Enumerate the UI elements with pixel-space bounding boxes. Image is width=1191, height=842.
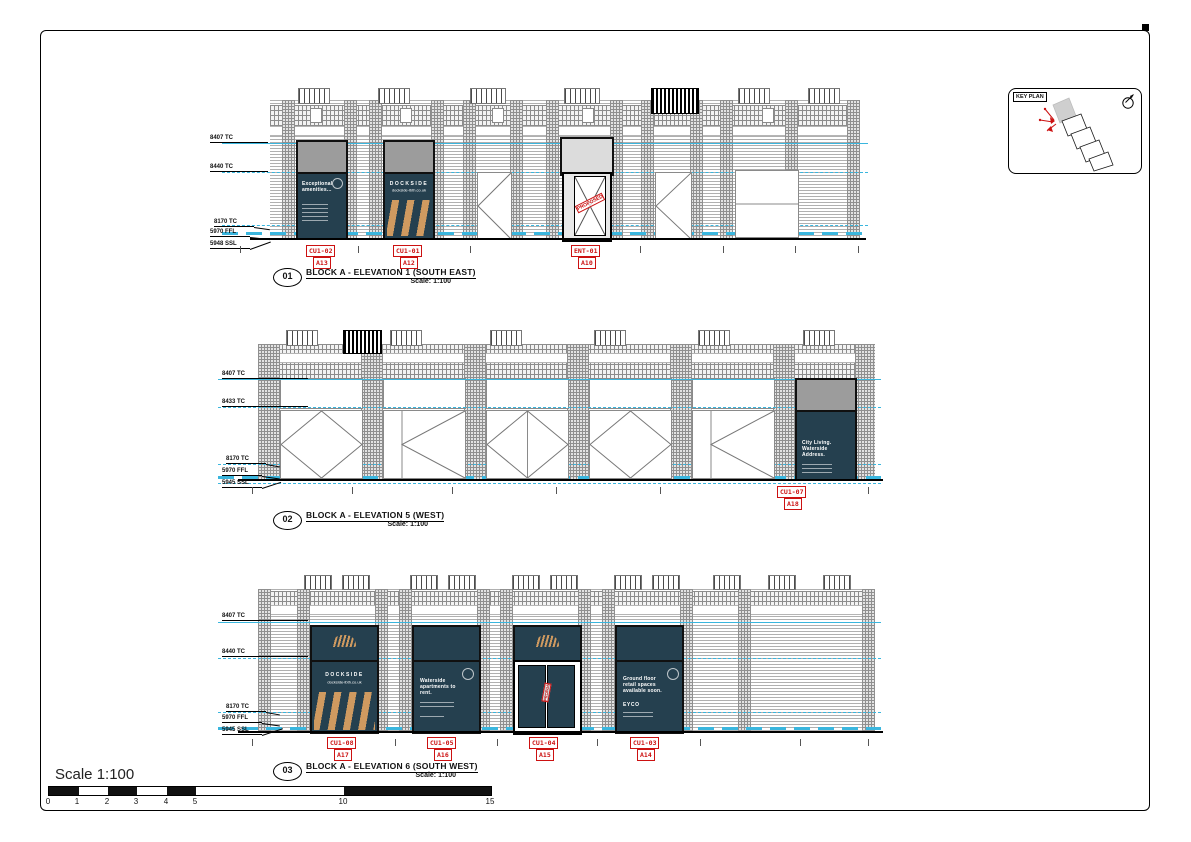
level-line-cyan bbox=[218, 379, 881, 380]
scale-bar-segment bbox=[108, 787, 138, 795]
title-bubble: 02 bbox=[273, 511, 302, 530]
fan-logo bbox=[535, 635, 559, 647]
pier bbox=[847, 100, 860, 238]
ground-line bbox=[238, 479, 883, 481]
elevation-scale: Scale: 1:100 bbox=[306, 772, 456, 779]
pier bbox=[738, 589, 751, 731]
transom-panel bbox=[296, 140, 348, 176]
sheet-ref-tag: A14 bbox=[637, 749, 655, 761]
glazed-door bbox=[692, 410, 775, 479]
pier bbox=[862, 589, 875, 731]
grid-tick bbox=[858, 246, 859, 253]
elevation-scale: Scale: 1:100 bbox=[306, 278, 451, 285]
grid-tick bbox=[240, 246, 241, 253]
grid-tick bbox=[470, 246, 471, 253]
sign-text: Ground floor retail spaces available soo… bbox=[623, 676, 667, 694]
transom-panel bbox=[383, 140, 435, 176]
level-label: 8440 TC bbox=[222, 649, 308, 657]
scale-bar-label: Scale 1:100 bbox=[55, 766, 134, 783]
small-window bbox=[400, 108, 412, 123]
scale-tick-label: 2 bbox=[105, 797, 109, 806]
scale-tick-label: 4 bbox=[164, 797, 168, 806]
level-label: 5948 SSL bbox=[210, 241, 250, 249]
sign-fine-print bbox=[420, 702, 454, 710]
title-bubble: 01 bbox=[273, 268, 302, 287]
window-opening bbox=[735, 170, 799, 238]
slot-windows bbox=[378, 88, 410, 104]
pier bbox=[670, 344, 692, 479]
grid-tick bbox=[597, 739, 598, 746]
sign-panel-cu1-05-top bbox=[412, 625, 481, 662]
pier bbox=[463, 100, 476, 238]
sign-panel-cu1-01: DOCKSIDE dockside-lbth.co.uk bbox=[383, 172, 435, 240]
grid-tick bbox=[497, 739, 498, 746]
double-door-frame: PROPOSED bbox=[513, 660, 582, 735]
level-label: 8433 TC bbox=[222, 399, 308, 407]
pier bbox=[297, 589, 310, 731]
scale-bar-segment bbox=[344, 787, 491, 795]
sign-title: DOCKSIDE bbox=[312, 672, 377, 678]
slab-band bbox=[258, 605, 875, 615]
elevation-1-drawing: Exceptional amenities... DOCKSIDE docksi… bbox=[270, 88, 860, 240]
scale-tick-label: 1 bbox=[75, 797, 79, 806]
slot-windows bbox=[286, 330, 318, 346]
elevation-3-drawing: DOCKSIDE dockside-lbth.co.uk Waterside a… bbox=[258, 575, 875, 735]
slot-windows bbox=[803, 330, 835, 346]
sign-text: Exceptional amenities... bbox=[302, 181, 332, 193]
scale-bar-segment bbox=[167, 787, 197, 795]
sign-url: dockside-lbth.co.uk bbox=[319, 681, 371, 685]
slot-windows bbox=[490, 330, 522, 346]
level-label: 5970 FFL bbox=[210, 229, 250, 237]
slot-windows bbox=[390, 330, 422, 346]
sheet-ref-tag: A16 bbox=[434, 749, 452, 761]
grid-tick bbox=[723, 246, 724, 253]
grid-tick bbox=[795, 246, 796, 253]
pier bbox=[855, 344, 875, 479]
grid-tick bbox=[252, 487, 253, 494]
scale-tick-label: 15 bbox=[486, 797, 495, 806]
sign-panel-cu1-08-top bbox=[310, 625, 379, 662]
small-window bbox=[762, 108, 774, 123]
grid-tick bbox=[868, 739, 869, 746]
elevation-2-drawing: City Living. Waterside Address. bbox=[258, 330, 875, 490]
sign-logo-circle bbox=[462, 668, 474, 680]
sign-panel-cu1-03-top bbox=[615, 625, 684, 662]
slot-windows bbox=[614, 575, 642, 590]
scale-bar-segment bbox=[49, 787, 79, 795]
slot-windows bbox=[768, 575, 796, 590]
key-plan: KEY PLAN bbox=[1008, 88, 1142, 174]
door-leaf bbox=[547, 665, 575, 728]
entrance-transom bbox=[560, 137, 614, 176]
unit-tag: ENT-01 bbox=[571, 245, 600, 257]
level-label: 5970 FFL bbox=[222, 468, 262, 476]
transom-window bbox=[589, 378, 672, 409]
scale-tick-label: 10 bbox=[339, 797, 348, 806]
sign-panel-cu1-04-top bbox=[513, 625, 582, 662]
sign-fine-print bbox=[802, 464, 832, 473]
grid-tick bbox=[700, 739, 701, 746]
sign-panel-cu1-05: Waterside apartments to rent. bbox=[412, 660, 481, 734]
grid-tick bbox=[868, 487, 869, 494]
unit-tag: CU1-05 bbox=[427, 737, 456, 749]
dark-railing bbox=[651, 88, 699, 114]
slot-windows bbox=[550, 575, 578, 590]
unit-tag: CU1-04 bbox=[529, 737, 558, 749]
glazed-door bbox=[280, 410, 363, 479]
transom-panel bbox=[795, 378, 857, 412]
elevation-markers bbox=[1039, 108, 1056, 132]
level-label: 5970 FFL bbox=[222, 715, 262, 723]
small-window bbox=[492, 108, 504, 123]
sign-fine-print bbox=[420, 716, 444, 720]
level-label: 8407 TC bbox=[222, 613, 308, 621]
grid-tick bbox=[252, 739, 253, 746]
sign-artwork bbox=[314, 692, 375, 730]
sign-logo-circle bbox=[667, 668, 679, 680]
level-label: 8440 TC bbox=[210, 164, 268, 172]
level-label: 8170 TC bbox=[214, 219, 254, 227]
grid-tick bbox=[660, 487, 661, 494]
sign-url: dockside-lbth.co.uk bbox=[390, 189, 428, 193]
transom-window bbox=[383, 378, 466, 409]
small-window bbox=[310, 108, 322, 123]
level-line-cyan bbox=[218, 622, 881, 623]
scale-bar bbox=[48, 786, 492, 796]
slot-windows bbox=[698, 330, 730, 346]
level-label: 8407 TC bbox=[210, 135, 268, 143]
sign-brand: EYCO bbox=[623, 702, 653, 708]
sign-panel-cu1-08: DOCKSIDE dockside-lbth.co.uk bbox=[310, 660, 379, 734]
ground-line bbox=[238, 731, 883, 733]
slot-windows bbox=[342, 575, 370, 590]
pier bbox=[720, 100, 733, 238]
grid-tick bbox=[800, 739, 801, 746]
unit-tag: CU1-03 bbox=[630, 737, 659, 749]
level-label: 8407 TC bbox=[222, 371, 308, 379]
sign-text: City Living. Waterside Address. bbox=[802, 440, 844, 458]
unit-tag: CU1-02 bbox=[306, 245, 335, 257]
entrance-frame: PROPOSED bbox=[562, 172, 612, 242]
pier bbox=[361, 344, 383, 479]
sign-fine-print bbox=[302, 204, 328, 224]
slot-windows bbox=[512, 575, 540, 590]
fan-logo bbox=[332, 635, 356, 647]
slot-windows bbox=[808, 88, 840, 104]
small-window bbox=[582, 108, 594, 123]
glazed-door bbox=[383, 410, 466, 479]
unit-tag: CU1-01 bbox=[393, 245, 422, 257]
sheet-ref-tag: A18 bbox=[784, 498, 802, 510]
glazed-door bbox=[477, 172, 512, 240]
sheet-ref-tag: A17 bbox=[334, 749, 352, 761]
sign-title: DOCKSIDE bbox=[385, 181, 433, 187]
sheet-ref-tag: A15 bbox=[536, 749, 554, 761]
sheet-ref-tag: A10 bbox=[578, 257, 596, 269]
slot-windows bbox=[470, 88, 506, 104]
pier bbox=[546, 100, 559, 238]
grid-tick bbox=[556, 487, 557, 494]
sheet-corner-mark bbox=[1142, 24, 1149, 31]
grid-tick bbox=[640, 246, 641, 253]
level-line-cyan bbox=[218, 407, 881, 408]
elevation-scale: Scale: 1:100 bbox=[306, 521, 428, 528]
level-label: 5945 SSL bbox=[222, 480, 262, 488]
slot-windows bbox=[298, 88, 330, 104]
slot-windows bbox=[304, 575, 332, 590]
entrance-door-leaf: PROPOSED bbox=[574, 176, 606, 236]
sign-panel-cu1-02: Exceptional amenities... bbox=[296, 172, 348, 240]
level-label: 8170 TC bbox=[226, 704, 266, 712]
grid-tick bbox=[352, 487, 353, 494]
slot-windows bbox=[594, 330, 626, 346]
slot-windows bbox=[738, 88, 770, 104]
slab-band bbox=[270, 126, 860, 136]
slot-windows bbox=[652, 575, 680, 590]
pier bbox=[282, 100, 295, 238]
glazed-door bbox=[589, 410, 672, 479]
transom-window bbox=[486, 378, 569, 409]
level-line-cyan bbox=[218, 483, 881, 484]
glazed-door bbox=[655, 172, 692, 240]
grid-tick bbox=[358, 246, 359, 253]
pier bbox=[773, 344, 795, 479]
pier bbox=[464, 344, 486, 479]
level-label: 5945 SSL bbox=[222, 727, 262, 735]
slot-windows bbox=[564, 88, 600, 104]
scale-tick-label: 3 bbox=[134, 797, 138, 806]
sign-fine-print bbox=[623, 712, 653, 718]
grid-tick bbox=[452, 487, 453, 494]
pier bbox=[602, 589, 615, 731]
glazed-double-door bbox=[486, 410, 569, 479]
pier bbox=[399, 589, 412, 731]
slot-windows bbox=[823, 575, 851, 590]
pier bbox=[369, 100, 382, 238]
slot-windows bbox=[410, 575, 438, 590]
sign-panel-cu1-03: Ground floor retail spaces available soo… bbox=[615, 660, 684, 734]
title-bubble: 03 bbox=[273, 762, 302, 781]
grid-tick bbox=[395, 739, 396, 746]
slot-windows bbox=[713, 575, 741, 590]
unit-tag: CU1-07 bbox=[777, 486, 806, 498]
unit-tag: CU1-08 bbox=[327, 737, 356, 749]
transom-window bbox=[692, 378, 775, 409]
pier bbox=[500, 589, 513, 731]
ground-line bbox=[250, 238, 866, 240]
sign-text: Waterside apartments to rent. bbox=[420, 678, 460, 696]
drawing-sheet: KEY PLAN bbox=[0, 0, 1191, 842]
slot-windows bbox=[448, 575, 476, 590]
scale-tick-label: 0 bbox=[46, 797, 50, 806]
pier bbox=[641, 100, 654, 238]
sign-panel-cu1-07: City Living. Waterside Address. bbox=[795, 410, 857, 481]
dark-railing bbox=[343, 330, 382, 354]
scale-tick-label: 5 bbox=[193, 797, 197, 806]
level-label: 8170 TC bbox=[226, 456, 266, 464]
key-plan-sketch bbox=[1009, 89, 1141, 173]
pier bbox=[567, 344, 589, 479]
sign-logo-circle bbox=[332, 178, 343, 189]
sign-artwork bbox=[387, 200, 431, 236]
